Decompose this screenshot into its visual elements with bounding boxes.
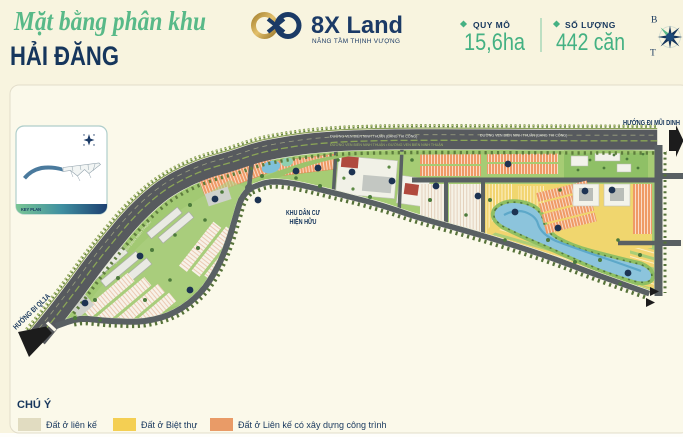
svg-text:15,6ha: 15,6ha xyxy=(464,29,526,56)
svg-text:B: B xyxy=(651,16,657,26)
svg-text:KEY PLAN: KEY PLAN xyxy=(21,207,42,212)
svg-text:ĐƯỜNG VEN BIỂN NINH THUẬN (ĐAN: ĐƯỜNG VEN BIỂN NINH THUẬN (ĐANG THI CÔNG… xyxy=(330,134,417,139)
svg-text:ĐƯỜNG VEN BIỂN NINH THUẬN (ĐAN: ĐƯỜNG VEN BIỂN NINH THUẬN (ĐANG THI CÔNG… xyxy=(480,133,567,138)
svg-text:442 căn: 442 căn xyxy=(556,29,625,56)
svg-text:Đất ở Liên kế có xây dựng công: Đất ở Liên kế có xây dựng công trình xyxy=(238,420,387,430)
svg-text:CHÚ Ý: CHÚ Ý xyxy=(17,398,52,411)
svg-text:HIỆN HỮU: HIỆN HỮU xyxy=(290,217,317,226)
svg-text:ĐƯỜNG VEN BIỂN NINH THUẬN • ĐƯ: ĐƯỜNG VEN BIỂN NINH THUẬN • ĐƯỜNG VEN BI… xyxy=(330,142,444,147)
svg-text:T: T xyxy=(650,49,656,59)
svg-text:Mặt bằng phân khu: Mặt bằng phân khu xyxy=(13,6,206,36)
svg-text:HƯỚNG ĐI MŨI DINH: HƯỚNG ĐI MŨI DINH xyxy=(623,118,680,127)
svg-text:HẢI ĐĂNG: HẢI ĐĂNG xyxy=(10,39,119,71)
svg-text:8X Land: 8X Land xyxy=(311,12,403,39)
svg-text:Đất ở Biệt thự: Đất ở Biệt thự xyxy=(141,420,197,430)
svg-text:Đất ở liên kế: Đất ở liên kế xyxy=(46,420,97,430)
svg-text:KHU DÂN CƯ: KHU DÂN CƯ xyxy=(286,208,320,217)
